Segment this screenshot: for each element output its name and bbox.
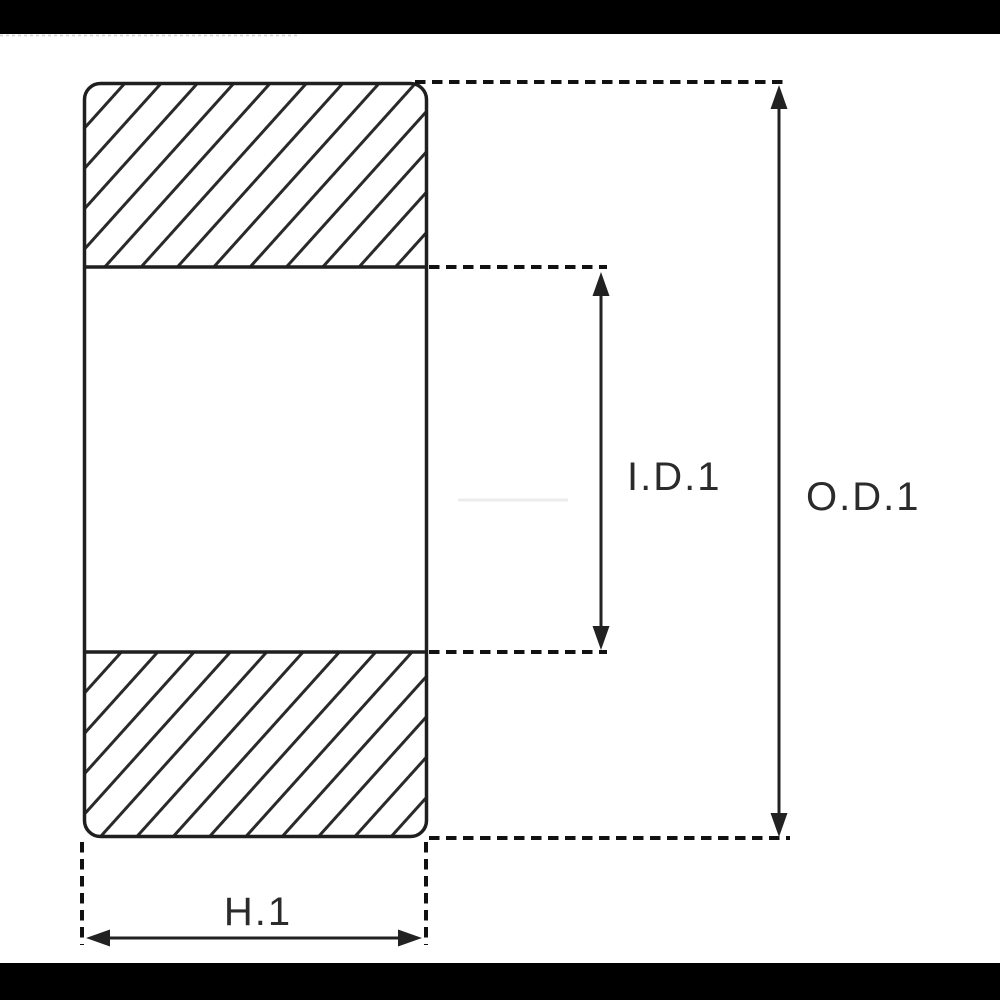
inner-diameter-label: I.D.1 xyxy=(627,455,721,499)
od-arrowhead-down xyxy=(771,813,788,837)
id-dimension-arrow xyxy=(593,272,610,650)
bearing-ring-section xyxy=(84,83,427,838)
od-arrowhead-up xyxy=(771,85,788,109)
top-hatched-band xyxy=(84,83,427,267)
width-label: H.1 xyxy=(224,890,292,934)
od-dimension-arrow xyxy=(771,85,788,837)
diagram-canvas: I.D.1 O.D.1 H.1 xyxy=(0,0,1000,1000)
id-arrowhead-up xyxy=(593,272,610,296)
id-arrowhead-down xyxy=(593,626,610,650)
bearing-cross-section-diagram: I.D.1 O.D.1 H.1 xyxy=(0,0,1000,1000)
outer-diameter-label: O.D.1 xyxy=(806,475,920,519)
h-arrowhead-left xyxy=(86,930,110,947)
h-arrowhead-right xyxy=(398,930,422,947)
bottom-hatched-band xyxy=(84,652,427,838)
